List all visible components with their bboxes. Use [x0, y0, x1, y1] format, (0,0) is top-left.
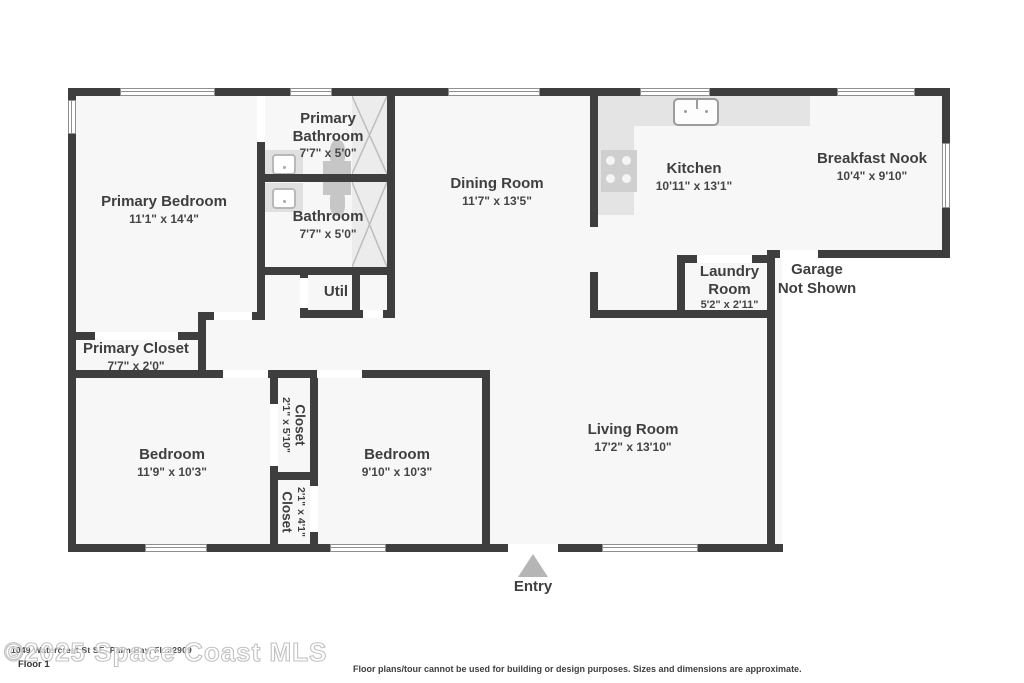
room-name: Bathroom	[268, 208, 388, 226]
garage-note: Garage Not Shown	[766, 261, 868, 299]
room-label-primary-bedroom: Primary Bedroom 11'1" x 14'4"	[84, 193, 244, 226]
door-opening	[300, 278, 308, 308]
wall	[677, 255, 685, 318]
window	[68, 100, 76, 134]
room-label-dining-room: Dining Room 11'7" x 13'5"	[417, 175, 577, 208]
room-dimensions: 11'1" x 14'4"	[84, 212, 244, 226]
room-label-bathroom: Bathroom 7'7" x 5'0"	[268, 208, 388, 241]
window	[330, 544, 386, 552]
room-name-closet-lower: Closet	[280, 491, 295, 532]
entry-arrow-icon	[518, 554, 548, 577]
room-label-primary-bathroom: Primary Bathroom 7'7" x 5'0"	[268, 110, 388, 161]
door-opening	[257, 96, 265, 142]
entry-door-opening	[508, 544, 558, 552]
door-opening	[317, 370, 362, 378]
wall	[387, 88, 395, 318]
window	[290, 88, 332, 96]
room-dimensions: 10'4" x 9'10"	[792, 169, 952, 183]
room-dimensions: 10'11" x 13'1"	[629, 179, 759, 193]
door-opening	[95, 332, 178, 340]
door-opening	[223, 370, 268, 378]
kitchen-sink-icon	[673, 98, 719, 126]
room-name: Living Room	[553, 421, 713, 439]
window	[120, 88, 215, 96]
window	[837, 88, 915, 96]
room-dimensions: 11'7" x 13'5"	[417, 194, 577, 208]
room-name-closet-hall: Closet	[293, 404, 308, 445]
room-dimensions: 9'10" x 10'3"	[317, 465, 477, 479]
room-dimensions: 7'7" x 5'0"	[268, 146, 388, 160]
room-label-laundry-room: Laundry Room 5'2" x 2'11"	[687, 263, 772, 312]
room-name: Bedroom	[92, 446, 252, 464]
floor-area	[68, 88, 782, 552]
room-dimensions: 11'9" x 10'3"	[92, 465, 252, 479]
room-name: Primary Closet	[75, 340, 197, 358]
wall	[257, 140, 265, 320]
door-opening	[214, 312, 252, 320]
room-dimensions: 5'2" x 2'11"	[687, 299, 772, 312]
garage-note-line1: Garage	[766, 261, 868, 280]
room-dimensions: 7'7" x 5'0"	[268, 227, 388, 241]
mls-watermark: ©2025 Space Coast MLS	[4, 637, 327, 668]
room-label-breakfast-nook: Breakfast Nook 10'4" x 9'10"	[792, 150, 952, 183]
entry-label: Entry	[503, 578, 563, 595]
floor-plan-image: Primary Bedroom 11'1" x 14'4" Primary Ba…	[0, 0, 1024, 683]
door-opening	[270, 404, 278, 466]
wall	[198, 312, 206, 378]
room-label-util: Util	[313, 283, 359, 301]
wall	[590, 96, 598, 227]
floor-number-label: Floor 1	[18, 659, 50, 670]
door-opening	[780, 250, 818, 258]
room-label-primary-closet: Primary Closet 7'7" x 2'0"	[75, 340, 197, 373]
room-name: Bedroom	[317, 446, 477, 464]
room-label-kitchen: Kitchen 10'11" x 13'1"	[629, 160, 759, 193]
wall	[270, 472, 318, 480]
window	[640, 88, 710, 96]
room-label-bedroom-right: Bedroom 9'10" x 10'3"	[317, 446, 477, 479]
window	[448, 88, 540, 96]
room-dimensions: 17'2" x 13'10"	[553, 440, 713, 454]
door-opening	[310, 486, 318, 532]
room-label-living-room: Living Room 17'2" x 13'10"	[553, 421, 713, 454]
wall	[257, 174, 395, 182]
room-dimensions-closet-hall: 2'1" x 5'10"	[280, 397, 292, 453]
door-opening	[363, 310, 383, 318]
wall	[68, 88, 76, 552]
room-name: Primary Bathroom	[268, 110, 388, 145]
sliding-door	[602, 544, 698, 552]
room-name: Kitchen	[629, 160, 759, 178]
room-dimensions-closet-lower: 2'1" x 4'1"	[295, 487, 307, 537]
door-opening	[697, 255, 752, 263]
room-name: Breakfast Nook	[792, 150, 952, 168]
room-label-bedroom-left: Bedroom 11'9" x 10'3"	[92, 446, 252, 479]
garage-note-line2: Not Shown	[766, 280, 868, 299]
disclaimer-text: Floor plans/tour cannot be used for buil…	[353, 664, 802, 674]
room-name: Util	[313, 283, 359, 301]
room-dimensions: 7'7" x 2'0"	[75, 359, 197, 373]
toilet-icon	[323, 161, 351, 174]
wall	[482, 370, 490, 552]
room-name: Primary Bedroom	[84, 193, 244, 211]
window	[145, 544, 207, 552]
wall	[257, 267, 395, 275]
room-name: Laundry Room	[687, 263, 772, 298]
room-name: Dining Room	[417, 175, 577, 193]
